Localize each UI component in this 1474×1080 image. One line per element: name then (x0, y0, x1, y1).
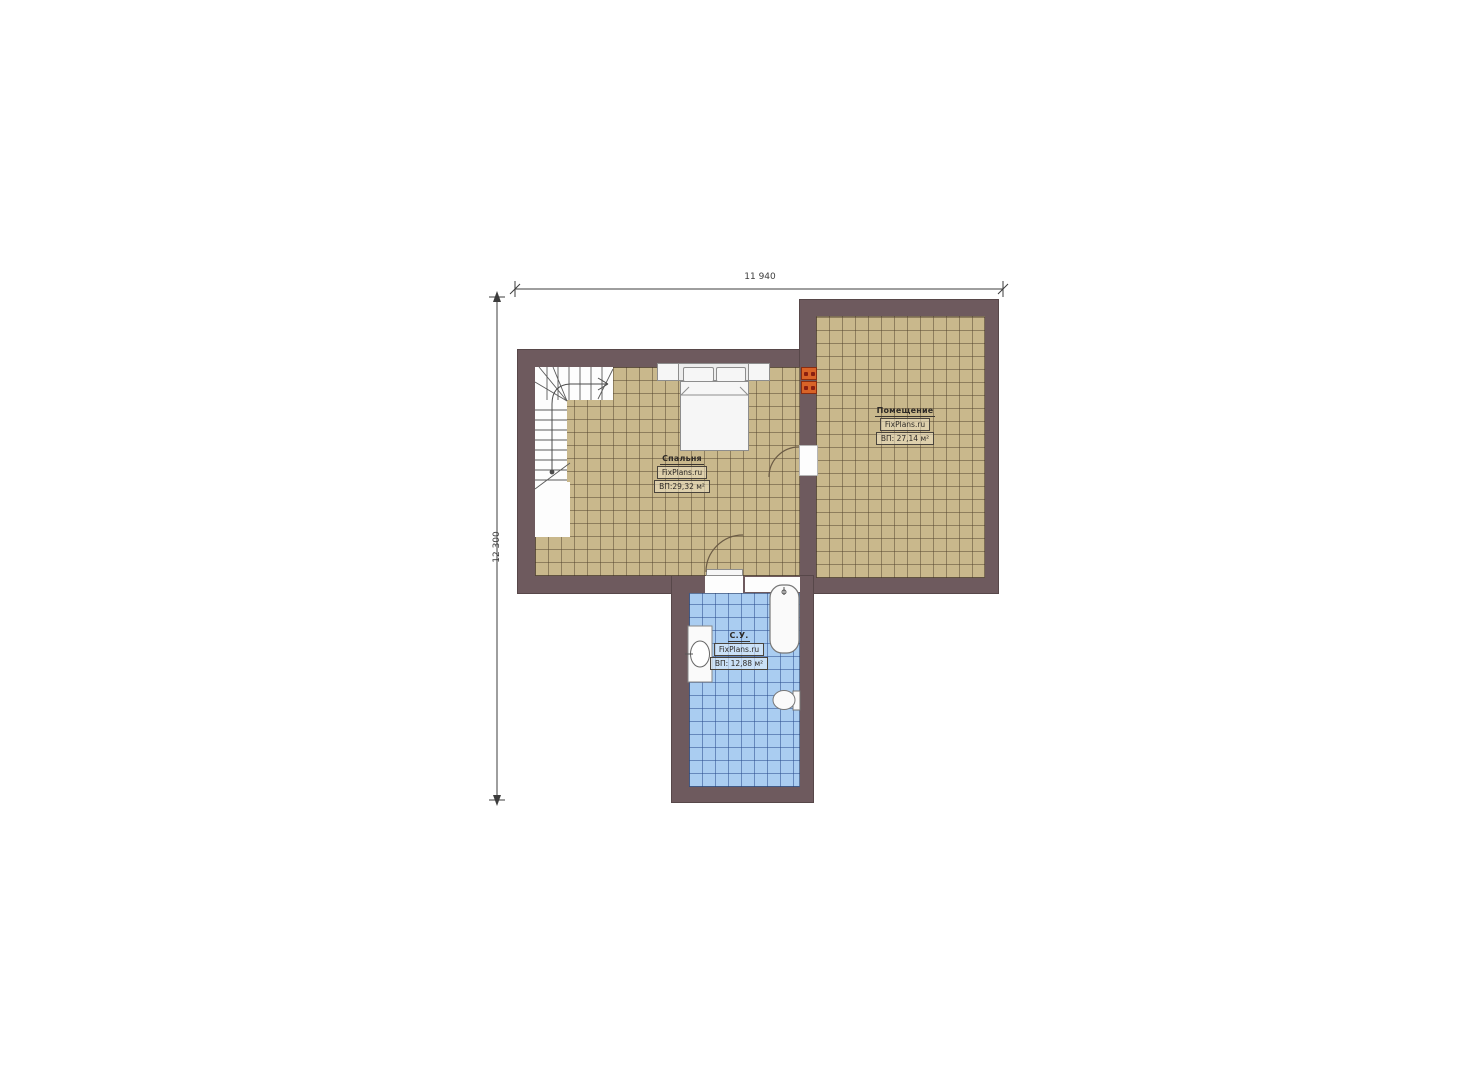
pillow-left (683, 367, 714, 382)
staircase-landing (535, 482, 570, 537)
nightstand-right (748, 363, 770, 381)
staircase-left-run (535, 400, 567, 482)
double-bed (680, 381, 749, 451)
bedroom-area-tag: ВП:29,32 м² (654, 480, 710, 493)
hall-area-tag: ВП: 27,14 м² (876, 432, 934, 445)
bedroom-label: Спальня FixPlans.ru ВП:29,32 м² (622, 454, 742, 493)
dimension-height-label: 12 300 (492, 487, 502, 607)
pillow-right (716, 367, 746, 382)
bedroom-site-tag: FixPlans.ru (657, 466, 707, 479)
bathroom-door-opening (705, 576, 743, 593)
hall-floor (816, 316, 985, 578)
heater-unit-bottom (801, 381, 817, 394)
hall-site-tag: FixPlans.ru (880, 418, 930, 431)
dimension-width-label: 11 940 (700, 272, 820, 282)
bathroom-door-leaf (706, 569, 743, 576)
dimension-line-top (510, 281, 1008, 297)
floor-plan: 11 940 12 300 Спальня FixPlans.ru ВП:29,… (0, 0, 1474, 1080)
hall-door-opening (799, 445, 818, 476)
nightstand-left (657, 363, 679, 381)
bathroom-name: С.У. (728, 631, 751, 642)
bathroom-label: С.У. FixPlans.ru ВП: 12,88 м² (679, 631, 799, 670)
bathroom-area-tag: ВП: 12,88 м² (710, 657, 768, 670)
staircase-top-run (535, 367, 613, 400)
bathroom-floor (689, 593, 800, 787)
hall-label: Помещение FixPlans.ru ВП: 27,14 м² (845, 406, 965, 445)
bathroom-site-tag: FixPlans.ru (714, 643, 764, 656)
heater-unit-top (801, 367, 817, 380)
bathroom-pass-opening (745, 577, 800, 592)
bedroom-name: Спальня (660, 454, 704, 465)
hall-name: Помещение (875, 406, 936, 417)
